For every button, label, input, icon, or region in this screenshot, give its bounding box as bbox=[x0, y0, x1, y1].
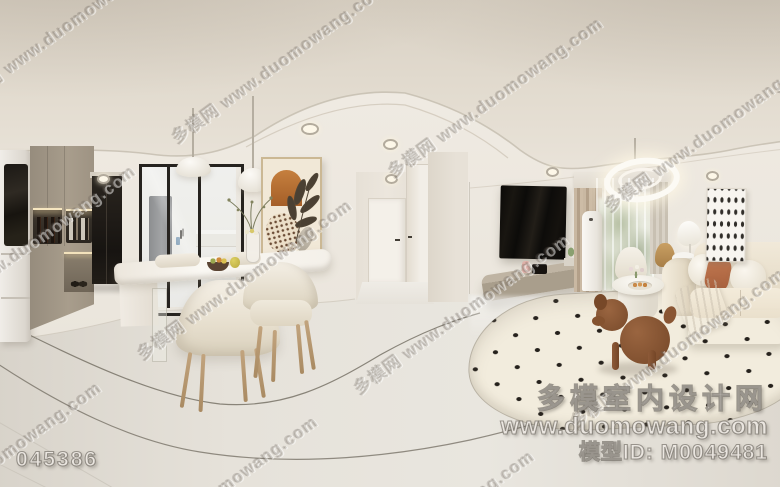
table-acrylic-leg-1 bbox=[152, 288, 167, 362]
living-spotlight-2 bbox=[706, 171, 719, 181]
wine-bottles bbox=[36, 217, 60, 243]
fridge-display-panel bbox=[4, 164, 28, 246]
croissants bbox=[631, 282, 649, 288]
ac-display-dot bbox=[589, 218, 593, 221]
dog-ottoman-ear bbox=[594, 294, 607, 310]
site-url: www.duomowang.com bbox=[500, 414, 768, 441]
chair-leg bbox=[180, 352, 193, 408]
chair-right-legs bbox=[252, 318, 314, 380]
vase-flowers bbox=[243, 228, 259, 236]
pendant-cord-1 bbox=[192, 108, 194, 158]
dog-ottoman-shadow bbox=[598, 362, 678, 376]
shoes bbox=[70, 280, 88, 288]
dining-spotlight bbox=[301, 123, 319, 135]
tv bbox=[499, 185, 567, 259]
fridge-door-seam bbox=[1, 253, 30, 255]
console-speaker bbox=[532, 264, 547, 274]
chair-leg bbox=[271, 330, 277, 382]
fruit-pear bbox=[230, 257, 240, 268]
dog-ottoman-leg-front bbox=[612, 342, 619, 370]
entry-door-split bbox=[106, 176, 107, 284]
floor-ac-unit bbox=[582, 211, 602, 291]
chair-leg bbox=[198, 354, 205, 412]
hallway-spotlight-2 bbox=[385, 174, 398, 184]
panorama-room-render: 多模网 www.duomowang.com 多模网 www.duomowang.… bbox=[0, 0, 780, 487]
chair-leg bbox=[253, 326, 262, 378]
hallway-door-near bbox=[406, 164, 430, 298]
dog-ottoman-snout bbox=[592, 316, 605, 326]
niche-photo-frames bbox=[69, 218, 89, 240]
glass-mullion-1 bbox=[167, 166, 170, 308]
model-id-label: 模型ID: bbox=[579, 441, 654, 464]
chair-leg bbox=[240, 350, 248, 402]
model-id-line: 模型ID: M0049481 bbox=[500, 441, 768, 465]
console-vase-pink bbox=[522, 261, 530, 273]
decor-niche-led bbox=[66, 209, 92, 211]
hallway-spotlight-1 bbox=[383, 139, 398, 150]
fruit-apples bbox=[209, 257, 227, 264]
hallway-side-wall bbox=[428, 152, 468, 302]
door-near-handle bbox=[408, 236, 412, 238]
dash-artwork bbox=[705, 188, 746, 263]
brand-block: 多模室内设计网 www.duomowang.com 模型ID: M0049481 bbox=[500, 383, 768, 465]
tv-wall-corner-line bbox=[469, 182, 470, 294]
entry-bench-led bbox=[64, 252, 94, 254]
chair-leg bbox=[296, 324, 304, 374]
model-id-value: M0049481 bbox=[661, 441, 768, 464]
entry-spotlight bbox=[97, 174, 110, 184]
table-flowers bbox=[626, 264, 646, 278]
hallway-door-far bbox=[368, 198, 406, 284]
door-far-handle bbox=[395, 239, 400, 241]
wine-niche-led bbox=[33, 208, 62, 210]
hallway-floor bbox=[356, 282, 434, 304]
pendant-lamp-1 bbox=[176, 157, 211, 177]
cabinet-seam-2 bbox=[64, 146, 65, 246]
site-name: 多模室内设计网 bbox=[500, 383, 768, 414]
fridge-drawer-seam bbox=[1, 297, 30, 299]
image-code: 045386 bbox=[16, 448, 98, 472]
far-chair-back-1 bbox=[155, 253, 201, 268]
living-spotlight-1 bbox=[546, 167, 559, 177]
dog-ottoman-leg-rear bbox=[648, 350, 656, 370]
pendant-cord-2 bbox=[252, 96, 254, 170]
